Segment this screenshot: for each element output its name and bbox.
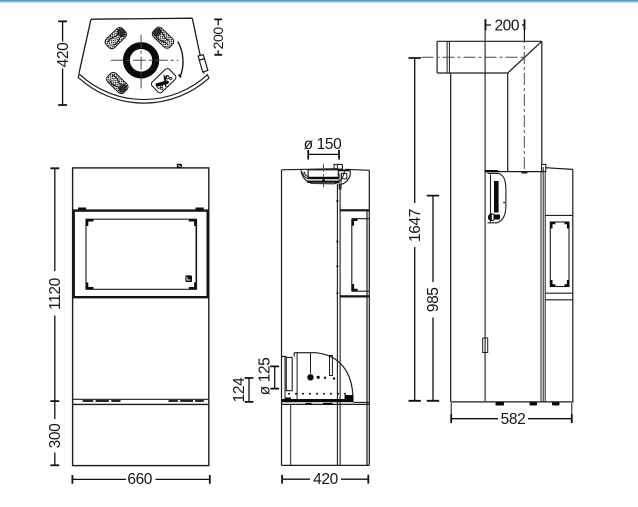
svg-text:200: 200 (210, 27, 226, 50)
svg-text:200: 200 (494, 17, 519, 34)
svg-text:1120: 1120 (47, 277, 64, 310)
svg-text:124: 124 (231, 377, 248, 402)
svg-text:300: 300 (47, 423, 64, 448)
svg-text:ø 125: ø 125 (256, 358, 273, 396)
svg-text:582: 582 (501, 411, 526, 428)
svg-text:ø 150: ø 150 (304, 136, 342, 153)
svg-text:420: 420 (55, 42, 72, 67)
svg-text:1647: 1647 (407, 209, 424, 242)
svg-text:985: 985 (425, 287, 442, 312)
svg-text:420: 420 (313, 471, 338, 488)
svg-text:660: 660 (127, 471, 152, 488)
